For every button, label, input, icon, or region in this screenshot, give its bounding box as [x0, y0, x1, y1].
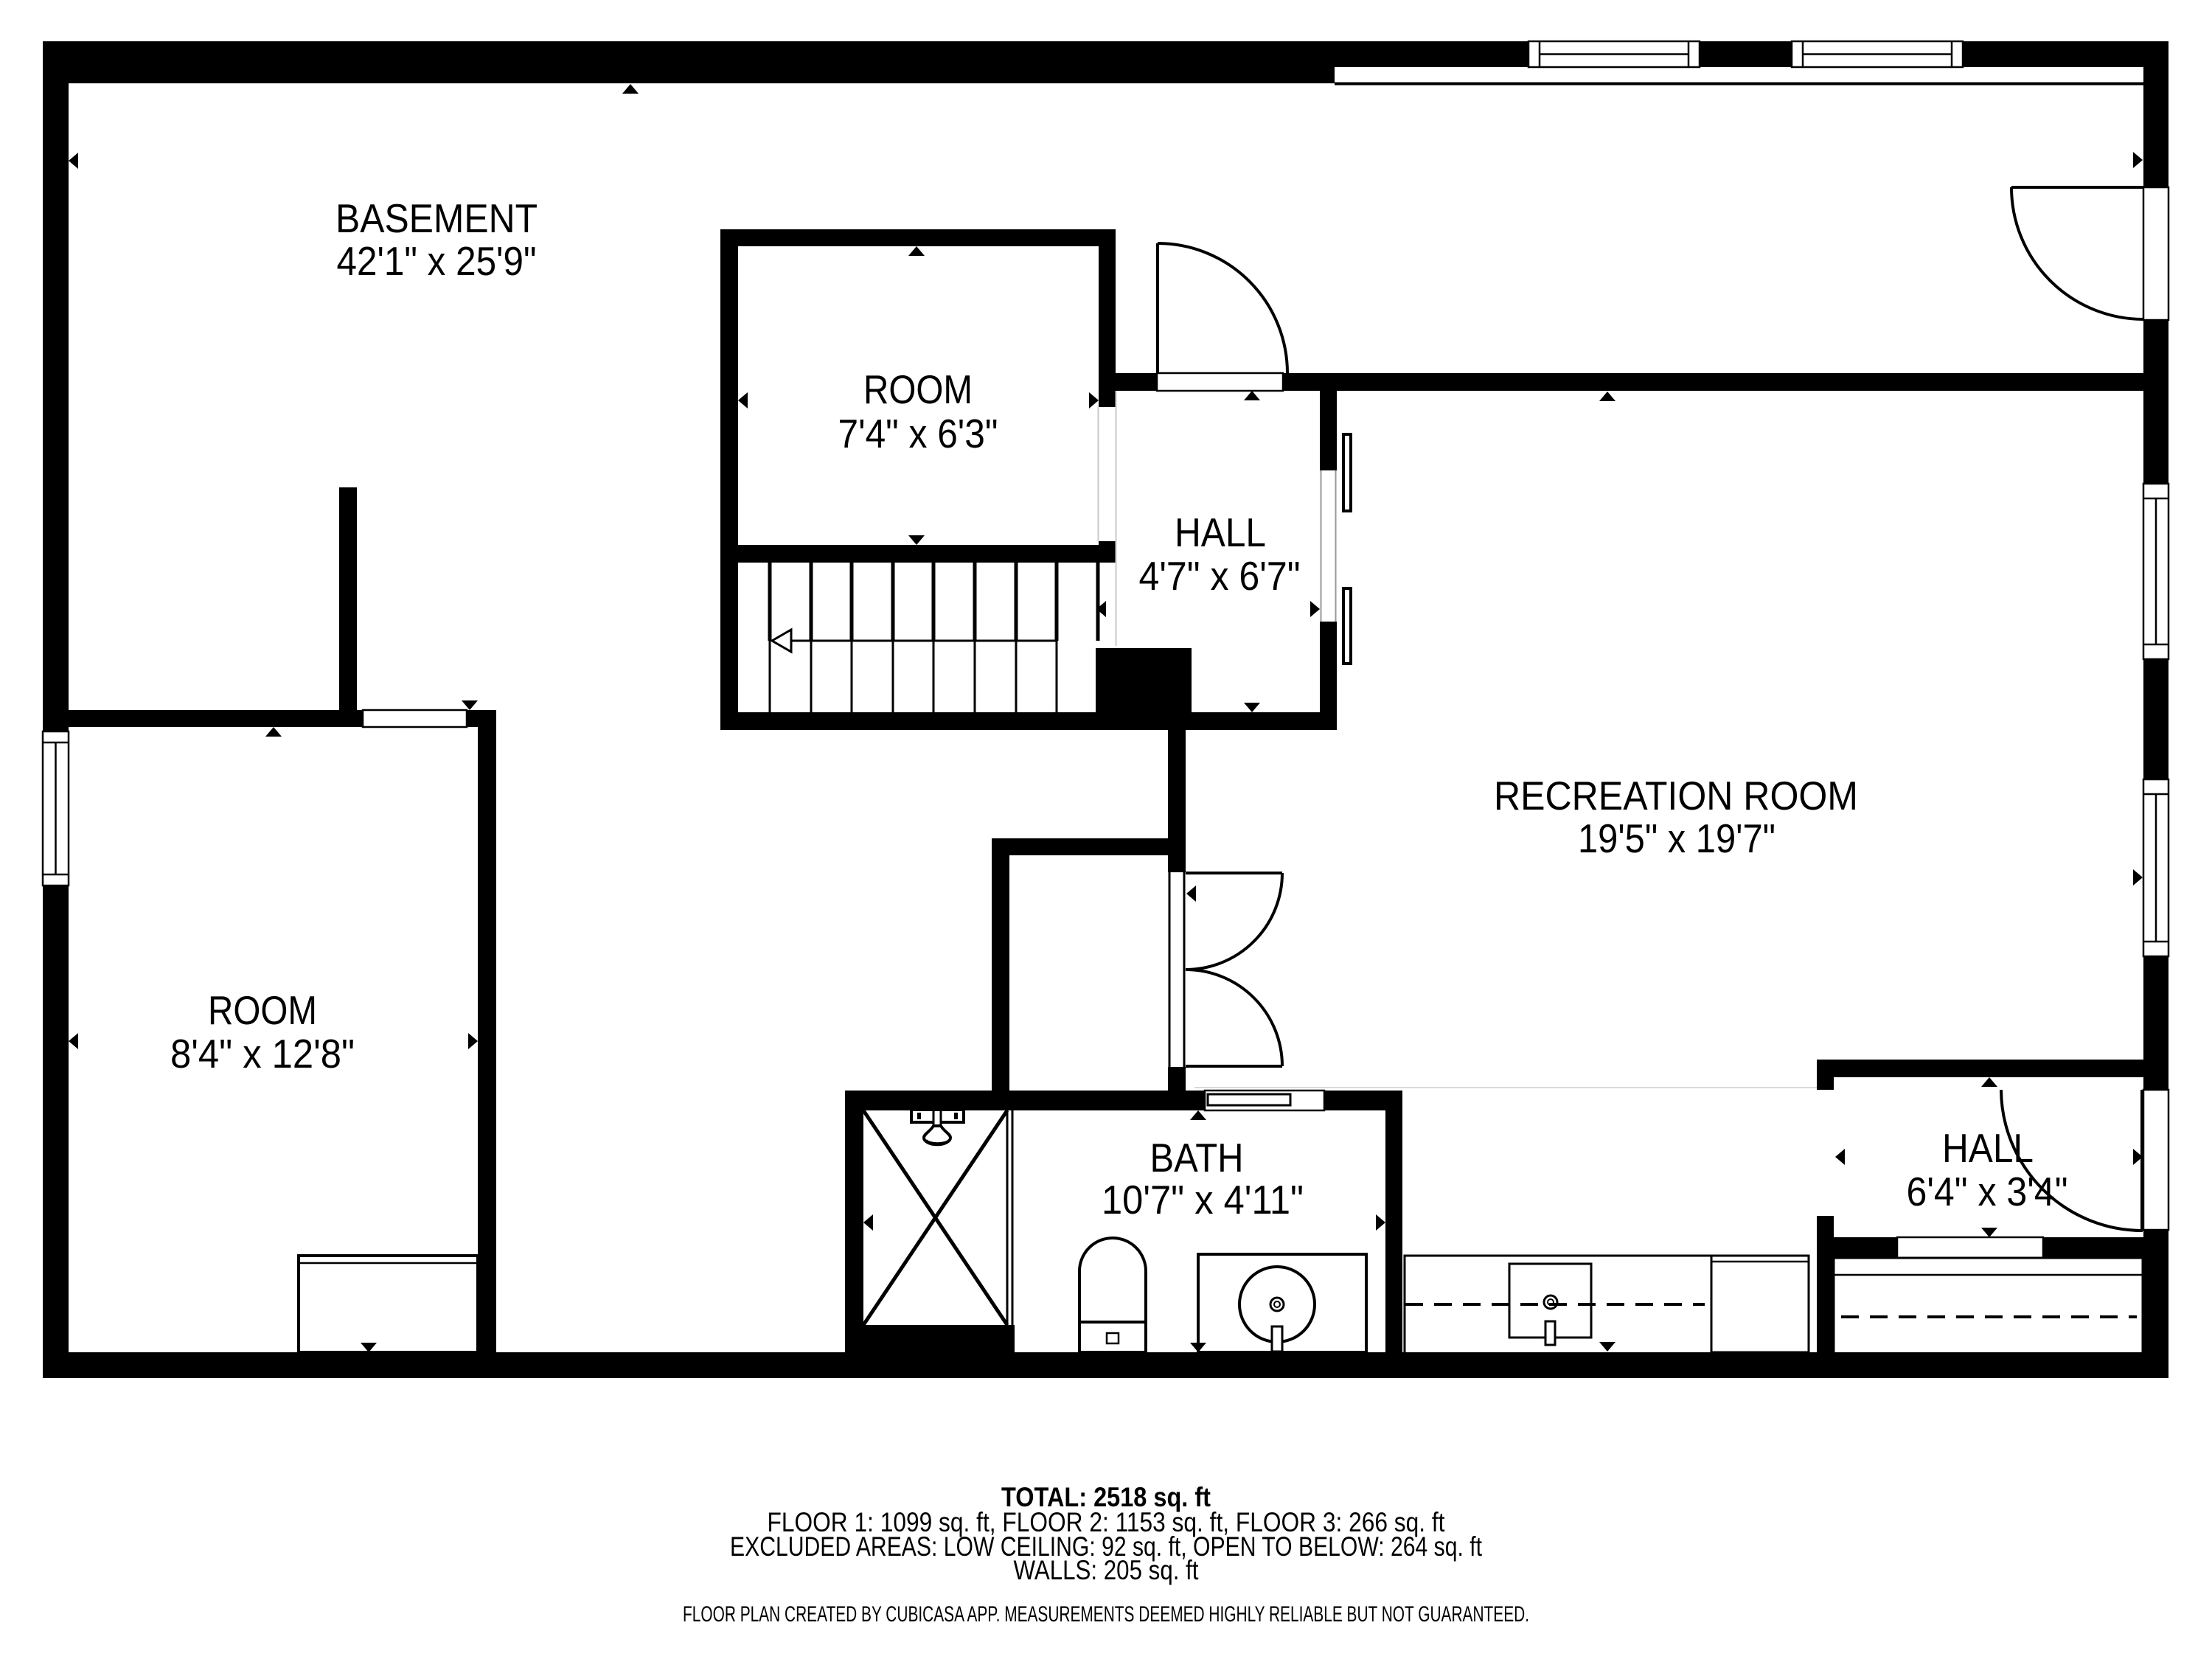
- svg-text:7'4" x 6'3": 7'4" x 6'3": [838, 411, 998, 456]
- svg-text:RECREATION ROOM: RECREATION ROOM: [1494, 773, 1858, 818]
- svg-text:8'4" x 12'8": 8'4" x 12'8": [170, 1031, 355, 1077]
- svg-text:ROOM: ROOM: [863, 366, 973, 412]
- svg-text:FLOOR PLAN CREATED BY CUBICASA: FLOOR PLAN CREATED BY CUBICASA APP. MEAS…: [683, 1602, 1529, 1627]
- svg-text:19'5" x 19'7": 19'5" x 19'7": [1578, 815, 1775, 861]
- svg-text:10'7" x 4'11": 10'7" x 4'11": [1102, 1177, 1304, 1222]
- svg-text:42'1" x 25'9": 42'1" x 25'9": [337, 238, 537, 284]
- svg-text:BASEMENT: BASEMENT: [335, 195, 538, 241]
- svg-text:WALLS: 205 sq. ft: WALLS: 205 sq. ft: [1014, 1555, 1200, 1585]
- svg-text:ROOM: ROOM: [208, 987, 317, 1033]
- svg-text:HALL: HALL: [1942, 1125, 2034, 1171]
- svg-text:6'4" x 3'4": 6'4" x 3'4": [1907, 1169, 2068, 1214]
- svg-text:BATH: BATH: [1150, 1135, 1244, 1180]
- svg-text:4'7" x 6'7": 4'7" x 6'7": [1139, 553, 1301, 599]
- svg-text:HALL: HALL: [1175, 509, 1266, 555]
